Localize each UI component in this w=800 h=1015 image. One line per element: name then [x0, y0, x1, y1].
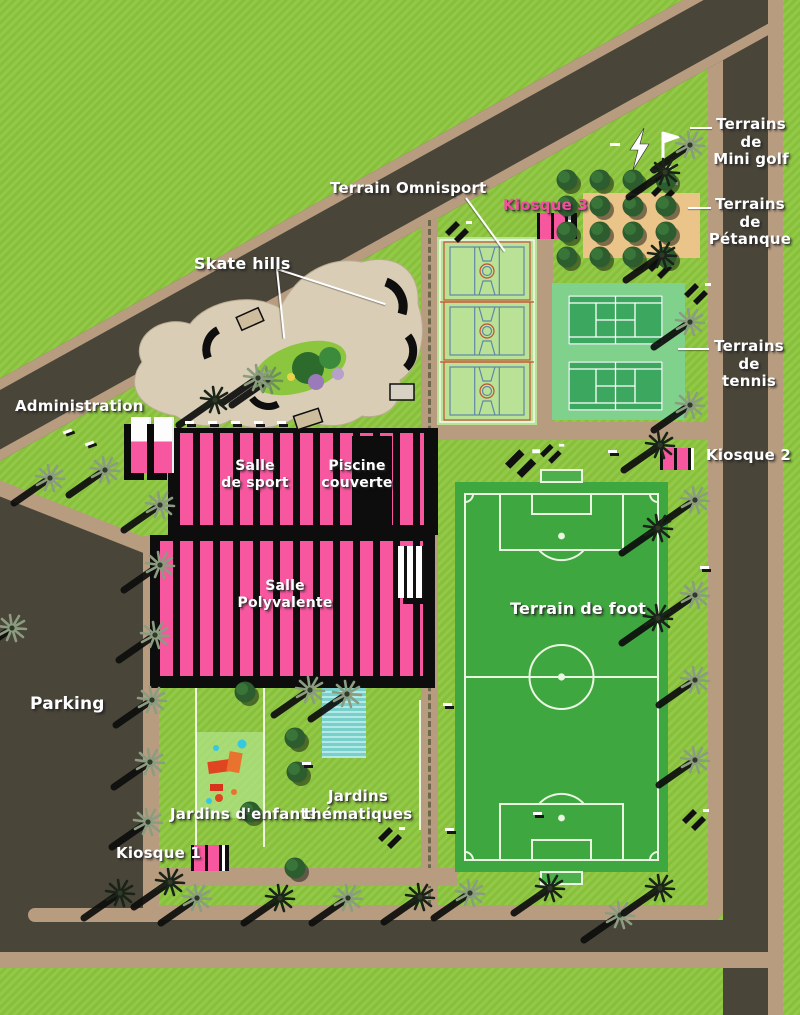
path-below-tennis	[437, 422, 710, 440]
bottom-road-sidewalk-outer	[0, 952, 768, 968]
building-white-annex	[398, 546, 424, 598]
stairs-icon	[682, 809, 709, 831]
label-kiosque-3: Kiosque 3	[503, 197, 588, 215]
administration-building	[154, 417, 174, 473]
tennis-court-2	[568, 361, 663, 411]
bench-marker	[302, 762, 311, 765]
label-jardins-thematiques: Jardins thématiques	[303, 788, 413, 823]
label-terrains-petanque: Terrains de Pétanque	[703, 196, 797, 249]
label-jardins-enfants: Jardins d'enfants	[170, 806, 317, 824]
bench-marker	[443, 703, 452, 706]
parking-sidewalk-bottom	[28, 908, 143, 922]
bench-marker	[231, 421, 240, 424]
site-plan-canvas: Terrain Omnisport Skate hills Kiosque 3 …	[0, 0, 800, 1015]
label-parking: Parking	[30, 694, 105, 714]
label-kiosque-2: Kiosque 2	[706, 447, 791, 465]
path-omnisport-tennis	[537, 237, 553, 425]
petanque-terrain	[583, 193, 700, 258]
kiosk-3	[537, 213, 577, 239]
bench-marker	[533, 812, 542, 815]
bench-marker	[445, 828, 454, 831]
tennis-area	[552, 283, 685, 420]
thematic-garden-pool	[322, 688, 366, 758]
label-skate-hills: Skate hills	[194, 255, 291, 274]
label-terrain-omnisport: Terrain Omnisport	[330, 180, 487, 198]
label-administration: Administration	[15, 398, 144, 416]
bench-marker	[185, 421, 194, 424]
label-terrains-mini-golf: Terrains de Mini golf	[705, 116, 797, 169]
garden-line	[419, 700, 421, 830]
label-piscine-couverte: Piscine couverte	[307, 458, 407, 491]
label-terrains-tennis: Terrains de tennis	[707, 338, 791, 391]
bottom-road-sidewalk-inner	[150, 905, 708, 920]
label-terrain-de-foot: Terrain de foot	[510, 600, 646, 619]
kiosk-2	[660, 448, 694, 470]
tennis-court-1	[568, 295, 663, 345]
sidewalk-corner	[708, 905, 723, 920]
bench-marker	[277, 421, 286, 424]
multipurpose-hall-building	[150, 535, 435, 688]
label-salle-de-sport: Salle de sport	[203, 458, 307, 491]
bench-marker	[254, 421, 263, 424]
stairs-icon	[378, 827, 405, 849]
leader-tennis	[678, 348, 709, 350]
label-salle-polyvalente: Salle Polyvalente	[226, 578, 344, 611]
bench-marker	[608, 450, 617, 453]
label-kiosque-1: Kiosque 1	[116, 845, 201, 863]
bench-marker	[208, 421, 217, 424]
administration-building	[131, 417, 151, 473]
bench-marker	[700, 566, 709, 569]
